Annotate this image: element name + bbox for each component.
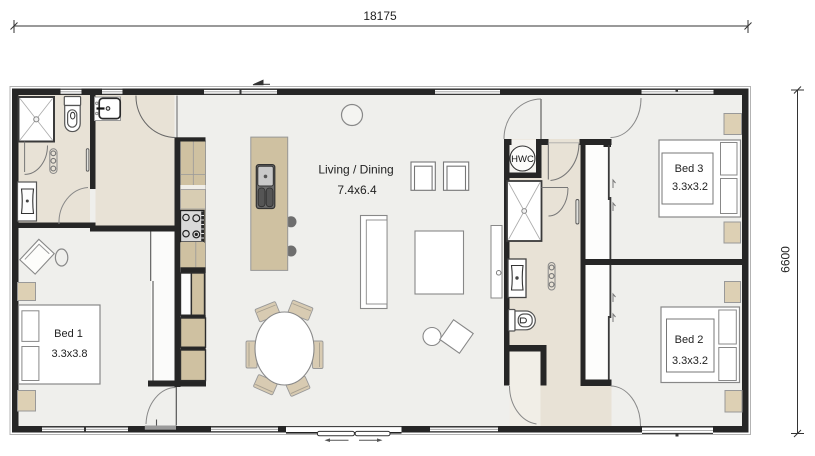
svg-text:Bed 1: Bed 1 (54, 328, 83, 340)
svg-text:7.4x6.4: 7.4x6.4 (337, 183, 377, 197)
svg-text:3.3x3.8: 3.3x3.8 (51, 348, 87, 360)
svg-text:3.3x3.2: 3.3x3.2 (672, 181, 708, 193)
svg-text:HWC: HWC (511, 154, 534, 165)
svg-text:6600: 6600 (779, 246, 793, 273)
svg-text:18175: 18175 (363, 9, 397, 23)
svg-text:Living / Dining: Living / Dining (318, 163, 393, 177)
svg-text:3.3x3.2: 3.3x3.2 (672, 355, 708, 367)
svg-text:Bed 2: Bed 2 (675, 334, 704, 346)
svg-text:Bed 3: Bed 3 (675, 163, 704, 175)
